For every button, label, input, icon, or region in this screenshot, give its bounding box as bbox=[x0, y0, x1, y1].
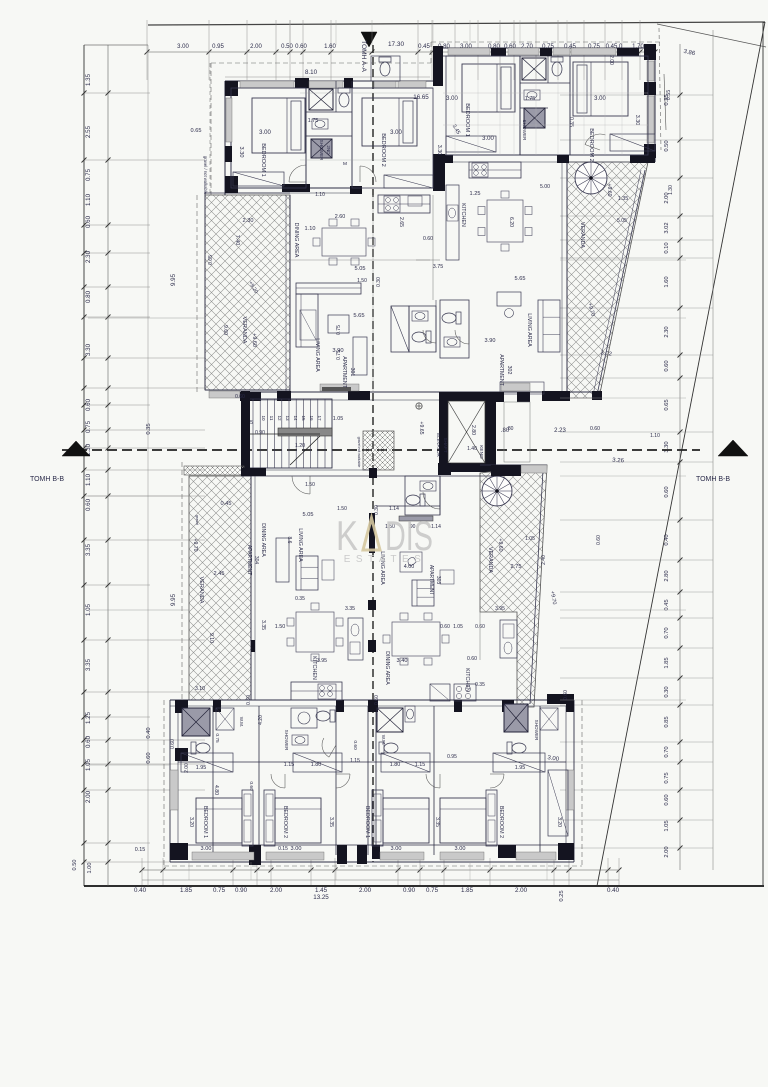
svg-text:2.00: 2.00 bbox=[664, 846, 670, 857]
svg-text:3.02: 3.02 bbox=[664, 222, 670, 233]
svg-text:3.75: 3.75 bbox=[433, 264, 444, 270]
svg-text:0.40: 0.40 bbox=[134, 887, 147, 894]
svg-text:15: 15 bbox=[301, 415, 306, 421]
svg-text:0.40: 0.40 bbox=[664, 534, 670, 545]
svg-text:1.50: 1.50 bbox=[305, 482, 315, 488]
svg-text:1.85: 1.85 bbox=[664, 657, 670, 668]
svg-text:3.00: 3.00 bbox=[177, 44, 189, 50]
svg-text:+9.60: +9.60 bbox=[251, 333, 257, 347]
svg-text:3.00: 3.00 bbox=[390, 130, 402, 136]
svg-text:BEDROOM 2: BEDROOM 2 bbox=[588, 128, 594, 162]
svg-text:0.35: 0.35 bbox=[295, 596, 305, 602]
svg-text:TOMH A-A: TOMH A-A bbox=[360, 40, 367, 72]
svg-text:0.65: 0.65 bbox=[191, 128, 202, 134]
svg-text:14: 14 bbox=[293, 415, 298, 421]
svg-text:13.25: 13.25 bbox=[313, 894, 329, 901]
svg-text:1.10: 1.10 bbox=[85, 193, 92, 206]
svg-text:0.75: 0.75 bbox=[85, 420, 92, 433]
svg-text:KENO: KENO bbox=[478, 445, 484, 459]
svg-text:304: 304 bbox=[253, 556, 259, 565]
svg-text:16: 16 bbox=[309, 415, 314, 421]
svg-text:2.45: 2.45 bbox=[214, 571, 225, 577]
svg-text:K: K bbox=[336, 512, 358, 559]
svg-text:1.25: 1.25 bbox=[470, 191, 481, 197]
svg-text:17: 17 bbox=[317, 415, 322, 421]
svg-text:DINING AREA: DINING AREA bbox=[384, 651, 390, 685]
svg-text:KITCHEN: KITCHEN bbox=[464, 668, 470, 692]
svg-text:3.30: 3.30 bbox=[85, 343, 92, 356]
svg-text:1.95: 1.95 bbox=[515, 765, 526, 771]
svg-text:0.95: 0.95 bbox=[447, 754, 457, 760]
svg-text:2.30: 2.30 bbox=[664, 326, 670, 337]
svg-text:0.40: 0.40 bbox=[146, 727, 152, 738]
svg-text:8.10: 8.10 bbox=[305, 69, 318, 76]
svg-text:2.80: 2.80 bbox=[664, 570, 670, 581]
svg-text:0.75: 0.75 bbox=[336, 325, 342, 335]
svg-text:APARTMENT: APARTMENT bbox=[498, 354, 504, 386]
svg-text:2ND: 2ND bbox=[326, 145, 331, 155]
svg-text:2.30: 2.30 bbox=[85, 250, 92, 263]
svg-text:12: 12 bbox=[277, 415, 282, 421]
svg-text:3.30: 3.30 bbox=[634, 115, 640, 126]
svg-text:2.60: 2.60 bbox=[335, 214, 346, 220]
svg-text:0.90: 0.90 bbox=[403, 887, 416, 894]
svg-text:1.50: 1.50 bbox=[275, 624, 286, 630]
svg-text:0.60: 0.60 bbox=[563, 690, 569, 700]
svg-text:BEDROOM 1: BEDROOM 1 bbox=[464, 103, 470, 137]
svg-text:0.70: 0.70 bbox=[664, 627, 670, 638]
svg-text:1.50: 1.50 bbox=[357, 278, 367, 284]
svg-text:1.80: 1.80 bbox=[311, 762, 322, 768]
svg-text:0.65: 0.65 bbox=[208, 255, 214, 265]
svg-text:0.70: 0.70 bbox=[664, 746, 670, 757]
svg-text:3.95: 3.95 bbox=[495, 606, 505, 612]
svg-text:0.75: 0.75 bbox=[214, 733, 220, 743]
svg-text:9.10: 9.10 bbox=[208, 633, 214, 643]
svg-text:BEDROOM 2: BEDROOM 2 bbox=[498, 806, 504, 838]
svg-text:5.00: 5.00 bbox=[540, 184, 550, 190]
svg-text:VERANDA: VERANDA bbox=[579, 222, 585, 248]
svg-text:LIVING AREA: LIVING AREA bbox=[526, 313, 532, 347]
svg-text:1.60: 1.60 bbox=[664, 276, 670, 287]
svg-text:0.50: 0.50 bbox=[281, 44, 293, 50]
svg-text:2.80: 2.80 bbox=[470, 425, 476, 435]
svg-text:5.05: 5.05 bbox=[355, 266, 366, 272]
svg-text:7.40: 7.40 bbox=[234, 235, 240, 246]
svg-text:1.80: 1.80 bbox=[390, 762, 401, 768]
svg-text:0.60: 0.60 bbox=[590, 426, 600, 432]
svg-text:1.15: 1.15 bbox=[350, 758, 360, 764]
svg-text:3.35: 3.35 bbox=[260, 620, 266, 630]
svg-text:5.65: 5.65 bbox=[515, 276, 526, 282]
svg-text:0.60: 0.60 bbox=[146, 752, 152, 763]
svg-text:VERANDA: VERANDA bbox=[198, 576, 204, 603]
svg-text:2.30: 2.30 bbox=[243, 218, 254, 224]
svg-text:DIS: DIS bbox=[385, 512, 433, 559]
svg-text:0.25: 0.25 bbox=[559, 890, 565, 901]
svg-text:1.05: 1.05 bbox=[525, 536, 535, 542]
svg-text:3.00: 3.00 bbox=[446, 96, 458, 102]
svg-text:3.35: 3.35 bbox=[328, 817, 334, 827]
svg-text:4.80: 4.80 bbox=[213, 785, 219, 795]
svg-text:3.90: 3.90 bbox=[485, 338, 496, 344]
svg-text:1.05: 1.05 bbox=[333, 416, 344, 422]
svg-text:2.00: 2.00 bbox=[608, 55, 614, 65]
svg-text:301: 301 bbox=[349, 368, 355, 377]
svg-text:0.60: 0.60 bbox=[352, 740, 358, 750]
svg-text:3.20: 3.20 bbox=[188, 817, 194, 827]
svg-text:3.40: 3.40 bbox=[397, 658, 408, 664]
svg-text:0.60: 0.60 bbox=[85, 398, 92, 411]
svg-text:2.00: 2.00 bbox=[184, 763, 190, 773]
svg-text:0.65: 0.65 bbox=[664, 399, 670, 410]
svg-text:+9.70: +9.70 bbox=[192, 538, 198, 551]
svg-text:3.00: 3.00 bbox=[594, 96, 606, 102]
svg-text:0.45: 0.45 bbox=[664, 599, 670, 610]
svg-text:5.65: 5.65 bbox=[353, 313, 364, 319]
svg-text:1.05: 1.05 bbox=[85, 758, 92, 771]
svg-text:KITCHEN: KITCHEN bbox=[460, 203, 466, 227]
svg-text:1.10: 1.10 bbox=[305, 226, 316, 232]
svg-text:0.60: 0.60 bbox=[246, 695, 252, 705]
svg-text:0.75: 0.75 bbox=[85, 168, 92, 181]
svg-text:1.10: 1.10 bbox=[85, 473, 92, 486]
svg-text:.80: .80 bbox=[507, 426, 514, 432]
svg-text:+9.60: +9.60 bbox=[497, 538, 503, 551]
svg-text:0.60: 0.60 bbox=[596, 535, 602, 545]
svg-text:gravel not walkable: gravel not walkable bbox=[357, 437, 361, 468]
svg-text:1.35: 1.35 bbox=[618, 196, 629, 202]
svg-text:SHOWER: SHOWER bbox=[522, 120, 527, 141]
svg-text:+9.60: +9.60 bbox=[606, 183, 612, 196]
svg-text:TOMH B-B: TOMH B-B bbox=[696, 476, 730, 483]
svg-text:3.00: 3.00 bbox=[291, 846, 302, 852]
svg-text:0.85: 0.85 bbox=[664, 716, 670, 727]
svg-text:W.M.: W.M. bbox=[381, 735, 386, 745]
svg-text:1.85: 1.85 bbox=[180, 887, 193, 894]
svg-text:1.60: 1.60 bbox=[324, 44, 336, 50]
svg-text:+9.65: +9.65 bbox=[418, 421, 424, 434]
svg-text:2.00: 2.00 bbox=[270, 887, 283, 894]
svg-text:W.M.: W.M. bbox=[239, 717, 244, 727]
svg-text:1.40: 1.40 bbox=[467, 446, 477, 452]
svg-text:11: 11 bbox=[269, 416, 274, 421]
svg-text:DINING AREA: DINING AREA bbox=[260, 523, 266, 557]
svg-text:ELEVATOR: ELEVATOR bbox=[436, 433, 441, 457]
svg-text:2.55: 2.55 bbox=[85, 125, 92, 138]
svg-text:0.90: 0.90 bbox=[255, 430, 265, 436]
svg-text:0.50: 0.50 bbox=[72, 860, 78, 871]
svg-text:1.45: 1.45 bbox=[315, 887, 328, 894]
svg-text:2.65: 2.65 bbox=[398, 217, 404, 227]
svg-text:9.60: 9.60 bbox=[222, 325, 228, 335]
svg-text:LIVING AREA: LIVING AREA bbox=[314, 338, 320, 372]
svg-text:1.05: 1.05 bbox=[85, 603, 92, 616]
svg-text:0.60: 0.60 bbox=[440, 624, 450, 630]
svg-text:0.45: 0.45 bbox=[418, 44, 430, 50]
svg-text:3.35: 3.35 bbox=[85, 543, 92, 556]
svg-text:2.00: 2.00 bbox=[85, 790, 92, 803]
svg-text:gravel: gravel bbox=[195, 515, 199, 525]
svg-text:3.30: 3.30 bbox=[664, 441, 670, 452]
svg-text:2.00: 2.00 bbox=[515, 887, 528, 894]
svg-text:0.60: 0.60 bbox=[85, 498, 92, 511]
svg-text:1.00: 1.00 bbox=[87, 863, 93, 874]
svg-text:M: M bbox=[343, 161, 347, 167]
svg-text:3.30: 3.30 bbox=[238, 147, 244, 158]
svg-text:1.85: 1.85 bbox=[461, 887, 474, 894]
svg-text:0.50: 0.50 bbox=[664, 140, 670, 151]
svg-text:3.00: 3.00 bbox=[259, 130, 271, 136]
svg-text:0.60: 0.60 bbox=[374, 695, 380, 705]
svg-text:9.95: 9.95 bbox=[170, 273, 177, 286]
svg-text:3.20: 3.20 bbox=[556, 817, 562, 827]
svg-text:10: 10 bbox=[261, 415, 266, 421]
svg-text:3.00: 3.00 bbox=[391, 846, 402, 852]
svg-text:1.30: 1.30 bbox=[668, 185, 674, 195]
svg-text:0.60: 0.60 bbox=[664, 486, 670, 497]
svg-text:3.10: 3.10 bbox=[195, 686, 205, 692]
svg-text:302: 302 bbox=[506, 366, 512, 375]
svg-text:1.10: 1.10 bbox=[650, 433, 660, 439]
svg-text:0.15: 0.15 bbox=[278, 846, 288, 852]
svg-text:VERANDA: VERANDA bbox=[487, 547, 493, 573]
svg-text:1.75: 1.75 bbox=[308, 118, 319, 124]
svg-text:SHOWER: SHOWER bbox=[284, 730, 289, 751]
svg-text:16.65: 16.65 bbox=[413, 94, 429, 101]
svg-text:BEDROOM 1: BEDROOM 1 bbox=[202, 806, 208, 838]
svg-text:2.75: 2.75 bbox=[511, 564, 522, 570]
svg-text:3.26: 3.26 bbox=[612, 458, 625, 465]
svg-text:2.00: 2.00 bbox=[250, 44, 262, 50]
svg-text:0.60: 0.60 bbox=[664, 360, 670, 371]
svg-text:0.10: 0.10 bbox=[664, 242, 670, 253]
svg-text:0.55: 0.55 bbox=[666, 90, 672, 101]
svg-text:LIVING AREA: LIVING AREA bbox=[297, 528, 303, 562]
svg-text:SHOWER: SHOWER bbox=[319, 140, 324, 161]
svg-text:0.75: 0.75 bbox=[336, 350, 342, 360]
svg-text:3.00: 3.00 bbox=[455, 846, 466, 852]
svg-text:0.75: 0.75 bbox=[664, 772, 670, 783]
svg-text:0.75: 0.75 bbox=[213, 887, 226, 894]
svg-text:SHOWER: SHOWER bbox=[534, 720, 539, 741]
svg-text:gravel / not walkable: gravel / not walkable bbox=[203, 156, 208, 195]
svg-text:2.00: 2.00 bbox=[359, 887, 372, 894]
svg-text:3.30: 3.30 bbox=[436, 145, 442, 156]
svg-text:3.00: 3.00 bbox=[201, 846, 212, 852]
svg-text:0.60: 0.60 bbox=[248, 781, 254, 791]
svg-text:3.35: 3.35 bbox=[85, 658, 92, 671]
svg-text:0.60: 0.60 bbox=[664, 794, 670, 805]
svg-text:DINING AREA: DINING AREA bbox=[293, 223, 299, 258]
svg-text:13: 13 bbox=[285, 415, 290, 421]
svg-text:0.35: 0.35 bbox=[568, 117, 574, 127]
svg-text:0.30: 0.30 bbox=[374, 505, 380, 515]
svg-text:1.10: 1.10 bbox=[315, 192, 325, 198]
svg-text:0.30: 0.30 bbox=[376, 277, 382, 287]
svg-text:0.60: 0.60 bbox=[85, 215, 92, 228]
svg-text:0.75: 0.75 bbox=[426, 887, 439, 894]
svg-text:1.95: 1.95 bbox=[196, 765, 207, 771]
svg-text:0.35: 0.35 bbox=[475, 682, 485, 688]
svg-text:3.95: 3.95 bbox=[317, 658, 327, 664]
svg-text:1.20: 1.20 bbox=[295, 443, 305, 449]
svg-text:9.95: 9.95 bbox=[170, 593, 177, 606]
svg-text:5.05: 5.05 bbox=[617, 218, 627, 224]
svg-text:BEDROOM 1: BEDROOM 1 bbox=[364, 806, 370, 838]
svg-text:0.60: 0.60 bbox=[295, 44, 307, 50]
svg-text:1.05: 1.05 bbox=[664, 820, 670, 831]
svg-text:4.20: 4.20 bbox=[258, 715, 264, 725]
svg-text:0.35: 0.35 bbox=[146, 423, 152, 434]
svg-text:APARTMENT: APARTMENT bbox=[341, 356, 347, 388]
svg-text:0.60: 0.60 bbox=[235, 394, 245, 400]
svg-text:0.60: 0.60 bbox=[85, 735, 92, 748]
svg-text:0.45: 0.45 bbox=[221, 501, 232, 507]
svg-text:3.35: 3.35 bbox=[345, 606, 355, 612]
svg-text:0.15: 0.15 bbox=[135, 847, 146, 853]
svg-text:1.15: 1.15 bbox=[415, 762, 426, 768]
svg-text:17.30: 17.30 bbox=[388, 41, 404, 48]
svg-text:BEDROOM 2: BEDROOM 2 bbox=[380, 133, 386, 167]
svg-text:2.40: 2.40 bbox=[541, 555, 547, 565]
svg-text:SHAFT: SHAFT bbox=[443, 437, 448, 452]
svg-text:0.40: 0.40 bbox=[607, 887, 620, 894]
svg-text:1.25: 1.25 bbox=[85, 711, 92, 724]
svg-text:1.35: 1.35 bbox=[85, 73, 92, 86]
svg-text:0.90: 0.90 bbox=[235, 887, 248, 894]
svg-text:3.35: 3.35 bbox=[434, 817, 440, 827]
svg-text:0.30: 0.30 bbox=[664, 686, 670, 697]
svg-text:1.05: 1.05 bbox=[453, 624, 463, 630]
svg-text:0.95: 0.95 bbox=[212, 44, 224, 50]
svg-text:0.60: 0.60 bbox=[423, 236, 433, 242]
svg-text:5.05: 5.05 bbox=[303, 512, 314, 518]
svg-text:3.00: 3.00 bbox=[482, 136, 494, 142]
svg-text:0.60: 0.60 bbox=[467, 656, 477, 662]
svg-text:APARTMENT: APARTMENT bbox=[246, 545, 252, 575]
svg-text:1.75: 1.75 bbox=[525, 96, 536, 102]
svg-text:TOMH B-B: TOMH B-B bbox=[30, 476, 64, 483]
svg-text:VERANDA: VERANDA bbox=[241, 316, 247, 343]
svg-text:ESTATES: ESTATES bbox=[344, 554, 427, 565]
svg-text:2.23: 2.23 bbox=[554, 428, 566, 434]
svg-text:BEDROOM 2: BEDROOM 2 bbox=[282, 806, 288, 838]
svg-text:0.60: 0.60 bbox=[170, 739, 176, 749]
svg-text:6.20: 6.20 bbox=[508, 217, 514, 227]
svg-text:0.80: 0.80 bbox=[85, 290, 92, 303]
